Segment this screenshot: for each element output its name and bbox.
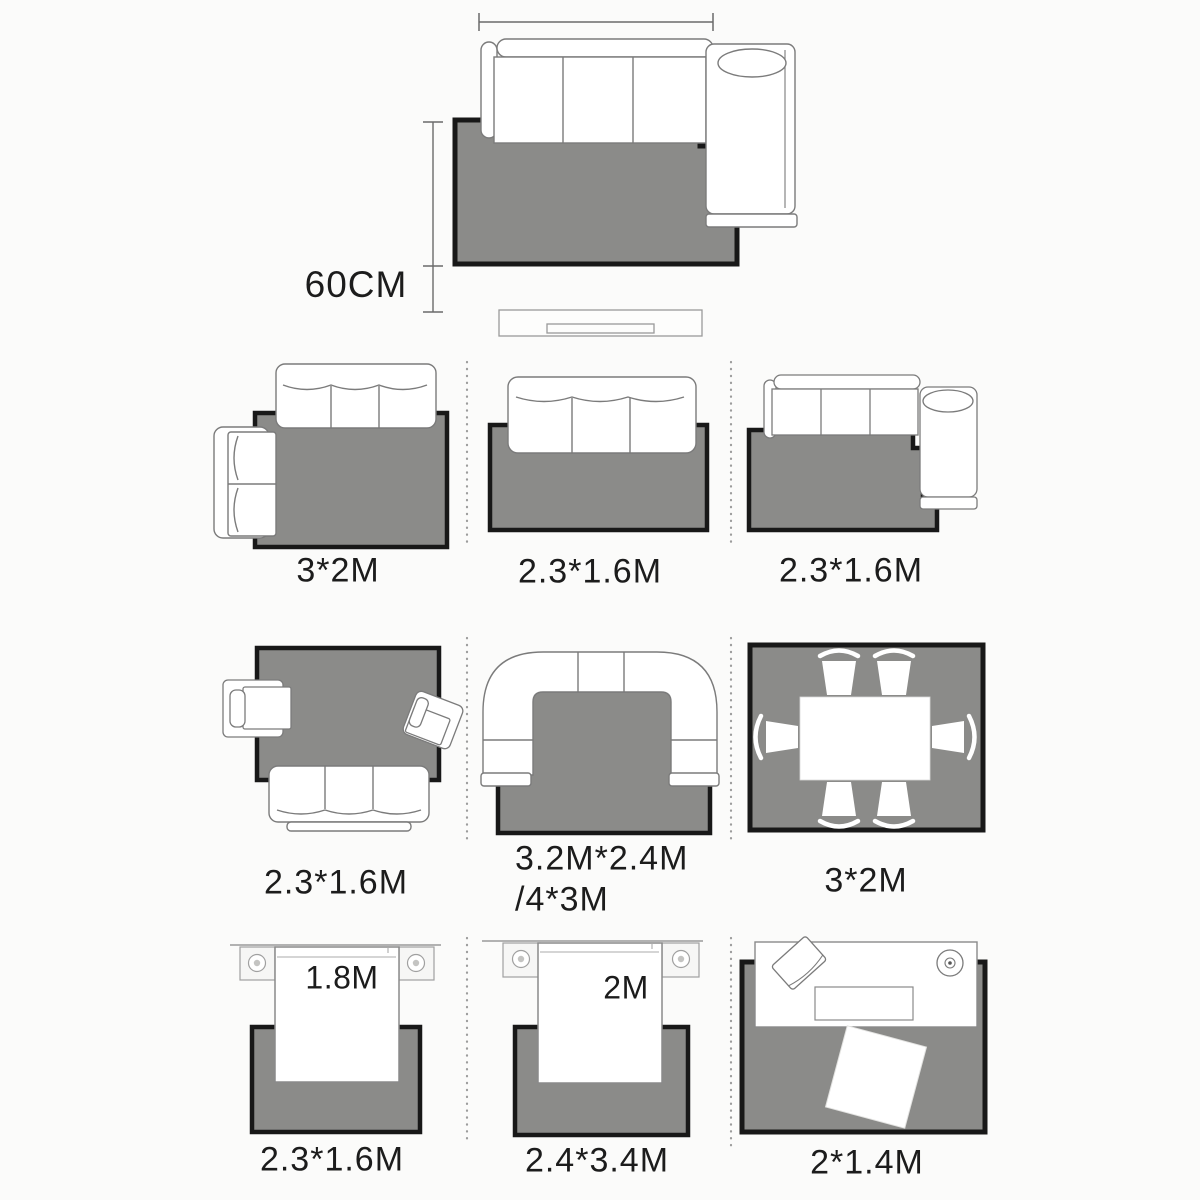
three-seat-sofa: [269, 766, 429, 831]
sofa-seats: [494, 57, 706, 143]
rug-size-guide: 60CM 3*2M 2.3*1.6M 2.3*1.6M 2.3*1.6M 3.2…: [0, 0, 1200, 1200]
rug: [749, 430, 937, 530]
nightstand-right: [399, 947, 434, 980]
panel-living-sofa-armchairs: [223, 648, 465, 831]
sofa-back: [774, 375, 920, 389]
size-label-living-sofa-armchairs: 2.3*1.6M: [264, 864, 408, 903]
panel-dining-table: [750, 645, 983, 830]
bolster-pillow: [718, 49, 786, 77]
panel-living-sofa-straight: [490, 377, 707, 530]
size-label-bedroom-1: 2.3*1.6M: [260, 1141, 404, 1180]
three-seat-sofa: [508, 377, 696, 453]
panel-bedroom-2: [482, 941, 703, 1135]
size-label-living-sofa-chaise: 2.3*1.6M: [779, 552, 923, 591]
dining-table: [800, 697, 930, 780]
chaise-footrest: [706, 214, 797, 227]
bed-width-label-2: 2M: [603, 970, 648, 1007]
clearance-label: 60CM: [305, 264, 408, 306]
bed: [538, 943, 662, 1083]
panel-living-u-sectional: [481, 652, 719, 833]
panel-living-sofa-loveseat: [214, 364, 447, 547]
rug: [255, 413, 447, 547]
three-seat-sofa: [276, 364, 436, 428]
chaise-footrest: [920, 497, 977, 509]
size-label-media-console: 2*1.4M: [810, 1144, 924, 1183]
sofa-seats: [772, 389, 918, 435]
sofa-back: [497, 39, 713, 57]
panel-hero-sectional: [423, 13, 797, 336]
nightstand-left: [503, 943, 540, 977]
panel-living-sofa-chaise: [749, 375, 977, 530]
clearance-dimension-line: [423, 122, 443, 312]
size-label-u-sectional-line2: /4*3M: [515, 881, 609, 920]
size-label-living-sofa-straight: 2.3*1.6M: [518, 553, 662, 592]
diagram-artwork: [0, 0, 1200, 1200]
size-label-u-sectional-line1: 3.2M*2.4M: [515, 840, 688, 879]
bolster-pillow: [923, 390, 973, 412]
size-label-dining-table: 3*2M: [824, 862, 907, 901]
nightstand-right: [662, 943, 699, 977]
table-lamp: [937, 950, 963, 976]
width-dimension-line: [479, 13, 713, 31]
size-label-bedroom-2: 2.4*3.4M: [525, 1142, 669, 1181]
armchair-left: [223, 680, 291, 737]
loveseat: [214, 427, 276, 538]
panel-media-console: [742, 936, 985, 1132]
bed-width-label-1: 1.8M: [305, 960, 378, 997]
nightstand-left: [240, 947, 275, 980]
tv-console: [499, 310, 702, 336]
size-label-living-sofa-loveseat: 3*2M: [296, 552, 379, 591]
